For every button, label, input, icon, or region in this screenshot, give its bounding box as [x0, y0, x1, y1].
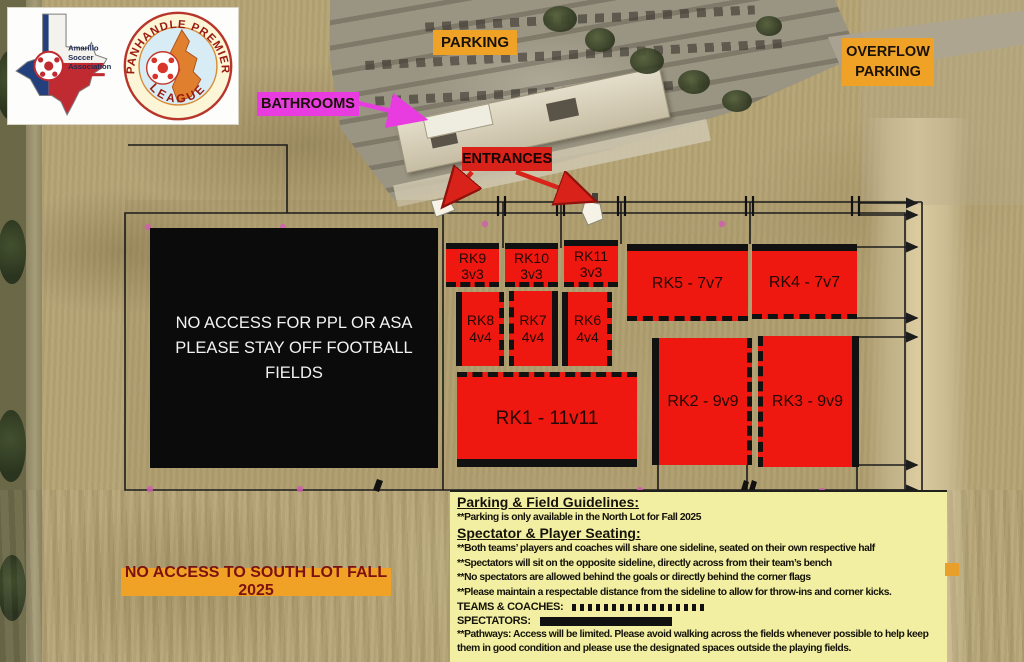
league-logo-card: Amarillo Soccer Association PANHANDLE PR…	[8, 8, 238, 124]
field-size: 3v3	[461, 266, 484, 282]
notice-line1: NO ACCESS FOR PPL OR ASA	[176, 311, 413, 336]
parking-label: PARKING	[433, 30, 517, 55]
field-name: RK6	[574, 312, 601, 329]
field-rk2: RK2 - 9v9	[652, 338, 752, 465]
field-name: RK9	[459, 250, 486, 266]
svg-text:Amarillo: Amarillo	[68, 44, 99, 53]
legend-teams-coaches: TEAMS & COACHES:	[457, 600, 940, 614]
dimension-lines	[856, 203, 917, 490]
spectators-sideline-swatch	[540, 617, 672, 626]
overflow-line2: PARKING	[855, 62, 921, 82]
entrances-label: ENTRANCES	[462, 147, 552, 171]
guidelines-seating-line: **No spectators are allowed behind the g…	[457, 571, 940, 585]
field-rk3: RK3 - 9v9	[758, 336, 859, 467]
asa-texas-logo: Amarillo Soccer Association	[8, 10, 120, 122]
field-name: RK8	[467, 312, 494, 329]
svg-text:Association: Association	[68, 62, 112, 71]
overflow-parking-label: OVERFLOW PARKING	[842, 38, 934, 86]
field-size: 4v4	[576, 329, 599, 346]
field-size: 3v3	[520, 266, 543, 282]
field-label: RK2 - 9v9	[667, 392, 738, 411]
field-rk1: RK1 - 11v11	[457, 372, 637, 467]
legend-spectators: SPECTATORS:	[457, 614, 940, 628]
field-label: RK5 - 7v7	[652, 274, 723, 293]
guidelines-panel: Parking & Field Guidelines: **Parking is…	[450, 490, 947, 662]
field-size: 4v4	[469, 329, 492, 346]
field-rk6: RK6 4v4	[562, 292, 612, 366]
legend-spectators-label: SPECTATORS:	[457, 615, 531, 627]
field-rk7: RK7 4v4	[509, 291, 558, 366]
field-rk11: RK11 3v3	[564, 240, 618, 287]
guidelines-heading-parking: Parking & Field Guidelines:	[457, 494, 940, 511]
field-name: RK7	[519, 312, 546, 329]
field-rk9: RK9 3v3	[446, 243, 499, 287]
ppl-circle-logo: PANHANDLE PREMIER LEAGUE	[120, 9, 236, 123]
bathrooms-arrow	[358, 103, 424, 119]
field-label: RK4 - 7v7	[769, 273, 840, 292]
guidelines-pathways-note: **Pathways: Access will be limited. Plea…	[457, 628, 940, 657]
orange-map-marker	[945, 563, 959, 576]
guidelines-seating-line: **Both teams’ players and coaches will s…	[457, 542, 940, 556]
field-rk8: RK8 4v4	[456, 292, 504, 366]
field-name: RK10	[514, 250, 549, 266]
football-no-access-notice: NO ACCESS FOR PPL OR ASA PLEASE STAY OFF…	[150, 228, 438, 468]
legend-teams-label: TEAMS & COACHES:	[457, 601, 563, 613]
guidelines-seating-line: **Please maintain a respectable distance…	[457, 586, 940, 600]
entrance-gate-shapes	[431, 193, 603, 225]
entrance-arrow-left	[445, 172, 472, 204]
teams-sideline-swatch	[572, 604, 704, 611]
svg-text:Soccer: Soccer	[68, 53, 93, 62]
field-label: RK1 - 11v11	[496, 409, 599, 428]
notice-line2: PLEASE STAY OFF FOOTBALL FIELDS	[150, 336, 438, 386]
field-rk10: RK10 3v3	[505, 243, 558, 287]
field-map: Amarillo Soccer Association PANHANDLE PR…	[0, 0, 1024, 662]
field-size: 4v4	[522, 329, 545, 346]
field-size: 3v3	[580, 264, 603, 280]
entrance-arrow-right	[516, 172, 592, 200]
field-name: RK11	[574, 248, 608, 264]
field-rk4: RK4 - 7v7	[752, 244, 857, 319]
no-access-south-lot-label: NO ACCESS TO SOUTH LOT FALL 2025	[121, 568, 391, 596]
field-rk5: RK5 - 7v7	[627, 244, 748, 321]
guidelines-heading-seating: Spectator & Player Seating:	[457, 525, 940, 542]
overflow-line1: OVERFLOW	[846, 42, 930, 62]
field-label: RK3 - 9v9	[772, 392, 843, 411]
guidelines-parking-line: **Parking is only available in the North…	[457, 511, 940, 525]
guidelines-seating-line: **Spectators will sit on the opposite si…	[457, 557, 940, 571]
bathrooms-label: BATHROOMS	[257, 92, 359, 116]
